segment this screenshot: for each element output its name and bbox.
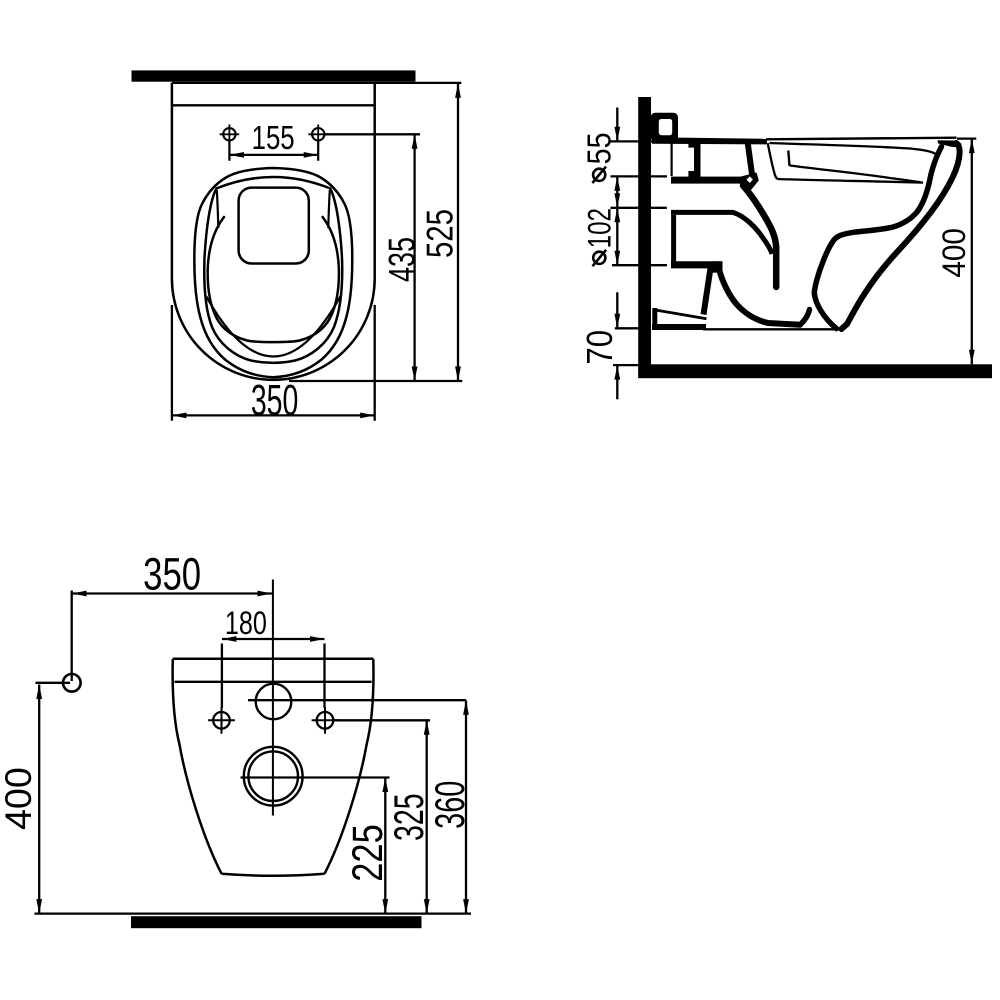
svg-text:70: 70 (580, 330, 621, 365)
svg-text:325: 325 (385, 793, 432, 841)
svg-text:525: 525 (421, 209, 462, 258)
svg-text:155: 155 (252, 120, 295, 157)
svg-text:180: 180 (225, 606, 267, 642)
svg-text:55: 55 (580, 132, 618, 164)
svg-text:400: 400 (936, 228, 972, 278)
svg-text:350: 350 (251, 376, 298, 424)
svg-text:225: 225 (345, 824, 392, 881)
svg-text:102: 102 (582, 208, 618, 248)
svg-text:400: 400 (0, 767, 39, 830)
svg-text:435: 435 (381, 237, 422, 282)
svg-text:360: 360 (427, 781, 474, 829)
svg-text:350: 350 (143, 548, 201, 600)
